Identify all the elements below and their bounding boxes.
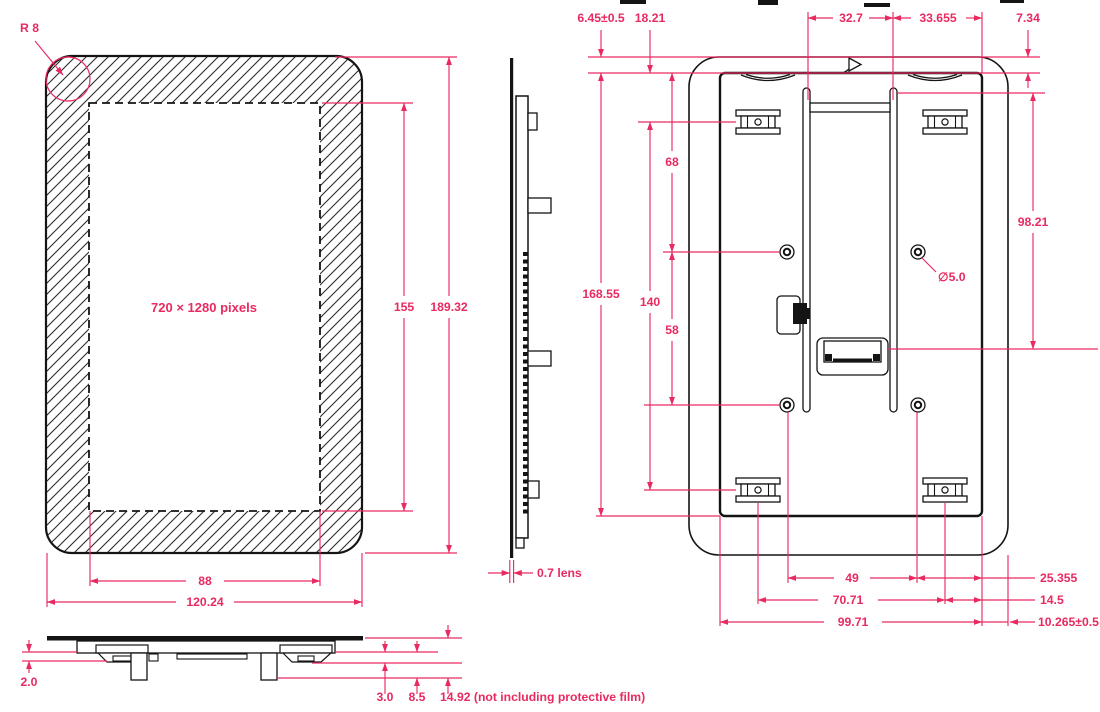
svg-text:120.24: 120.24 (186, 595, 223, 609)
tab-2 (528, 198, 551, 213)
dim-right-offset-2: 14.5 (945, 593, 1064, 607)
mount-bracket-bottom-right (923, 478, 967, 502)
dim-screen-width: 88 (90, 574, 320, 588)
svg-text:0.7 lens: 0.7 lens (537, 566, 582, 580)
dim-overall-height: 189.32 (430, 57, 467, 553)
dim-mount-hole-span-v: 140 (640, 122, 661, 490)
svg-text:8.5: 8.5 (409, 690, 426, 704)
dim-screw-top-offset: 68 (665, 73, 679, 252)
dim-overall-thickness: 14.92 (not including protective film) (440, 625, 645, 704)
back-view: 6.45±0.5 18.21 32.7 33.655 7.34 168.55 (577, 11, 1099, 629)
svg-text:140: 140 (640, 295, 661, 309)
dim-mount-hole-span-h: 70.71 (758, 593, 945, 607)
svg-text:33.655: 33.655 (919, 11, 956, 25)
svg-text:7.34: 7.34 (1016, 11, 1040, 25)
center-connector (817, 338, 888, 375)
dim-screw-span-h: 49 (788, 571, 917, 585)
back-inner-outline (720, 73, 982, 516)
body-side (516, 96, 528, 538)
dim-rail-span: 32.7 (808, 11, 893, 25)
dim-lens: 0.7 lens (488, 560, 582, 583)
svg-text:25.355: 25.355 (1040, 571, 1077, 585)
svg-text:88: 88 (198, 574, 212, 588)
svg-text:155: 155 (394, 300, 415, 314)
leg-profile-right (261, 653, 277, 680)
glass-side (510, 58, 513, 558)
svg-text:∅5.0: ∅5.0 (938, 270, 966, 284)
mount-bracket-top-right (923, 110, 967, 134)
svg-text:70.71: 70.71 (833, 593, 864, 607)
connector-profile (177, 654, 247, 659)
svg-text:58: 58 (665, 323, 679, 337)
svg-text:189.32: 189.32 (430, 300, 467, 314)
svg-text:6.45±0.5: 6.45±0.5 (577, 11, 625, 25)
front-view: 720 × 1280 pixels R 8 155 189.32 (20, 21, 468, 609)
side-view: 0.7 lens (488, 58, 582, 583)
svg-text:32.7: 32.7 (839, 11, 863, 25)
tab-1 (528, 113, 537, 130)
leg-profile-left (131, 653, 147, 680)
glass-edge (47, 636, 363, 641)
top-edge-fragments (620, 0, 1024, 7)
rail-right (890, 88, 897, 412)
dim-screen-height: 155 (394, 103, 415, 511)
svg-text:2.0: 2.0 (21, 675, 38, 689)
dim-inner-width: 99.71 (720, 615, 982, 629)
rail-left (803, 88, 810, 412)
dim-rail-to-edge: 33.655 (893, 11, 982, 25)
svg-text:18.21: 18.21 (635, 11, 666, 25)
dim-step-1: 3.0 (377, 641, 394, 704)
svg-text:3.0: 3.0 (377, 690, 394, 704)
dim-inner-height: 168.55 (582, 73, 619, 516)
svg-text:10.265±0.5: 10.265±0.5 (1038, 615, 1099, 629)
dim-top-left-offset: 6.45±0.5 (577, 11, 625, 57)
dim-screw-span-v: 58 (665, 252, 679, 405)
dim-step-2: 8.5 (409, 641, 426, 704)
bottom-view: 2.0 3.0 8.5 14.92 (not including protect… (21, 625, 646, 704)
dim-right-offset-1: 25.355 (917, 571, 1077, 585)
svg-text:14.5: 14.5 (1040, 593, 1064, 607)
dim-right-height: 98.21 (1018, 93, 1049, 349)
mount-bracket-bottom-left (736, 478, 780, 502)
mount-bracket-top-left (736, 110, 780, 134)
svg-text:49: 49 (845, 571, 859, 585)
svg-text:68: 68 (665, 155, 679, 169)
svg-text:98.21: 98.21 (1018, 215, 1049, 229)
screen-resolution-label: 720 × 1280 pixels (151, 300, 257, 315)
corner-radius-label: R 8 (20, 21, 39, 35)
svg-text:168.55: 168.55 (582, 287, 619, 301)
dim-overall-width: 120.24 (47, 595, 362, 609)
dim-top-right-offset: 7.34 (1016, 11, 1040, 88)
dim-top-inner-offset: 18.21 (635, 11, 666, 73)
dim-right-offset-3: 10.265±0.5 (982, 615, 1099, 629)
svg-text:14.92 (not including protectiv: 14.92 (not including protective film) (440, 690, 645, 704)
rail-crossbar (810, 103, 890, 112)
dim-step-small: 2.0 (21, 640, 38, 689)
engineering-drawing-page: 720 × 1280 pixels R 8 155 189.32 (0, 0, 1100, 712)
svg-text:99.71: 99.71 (838, 615, 869, 629)
tab-3 (528, 351, 551, 366)
tab-4 (528, 481, 539, 498)
